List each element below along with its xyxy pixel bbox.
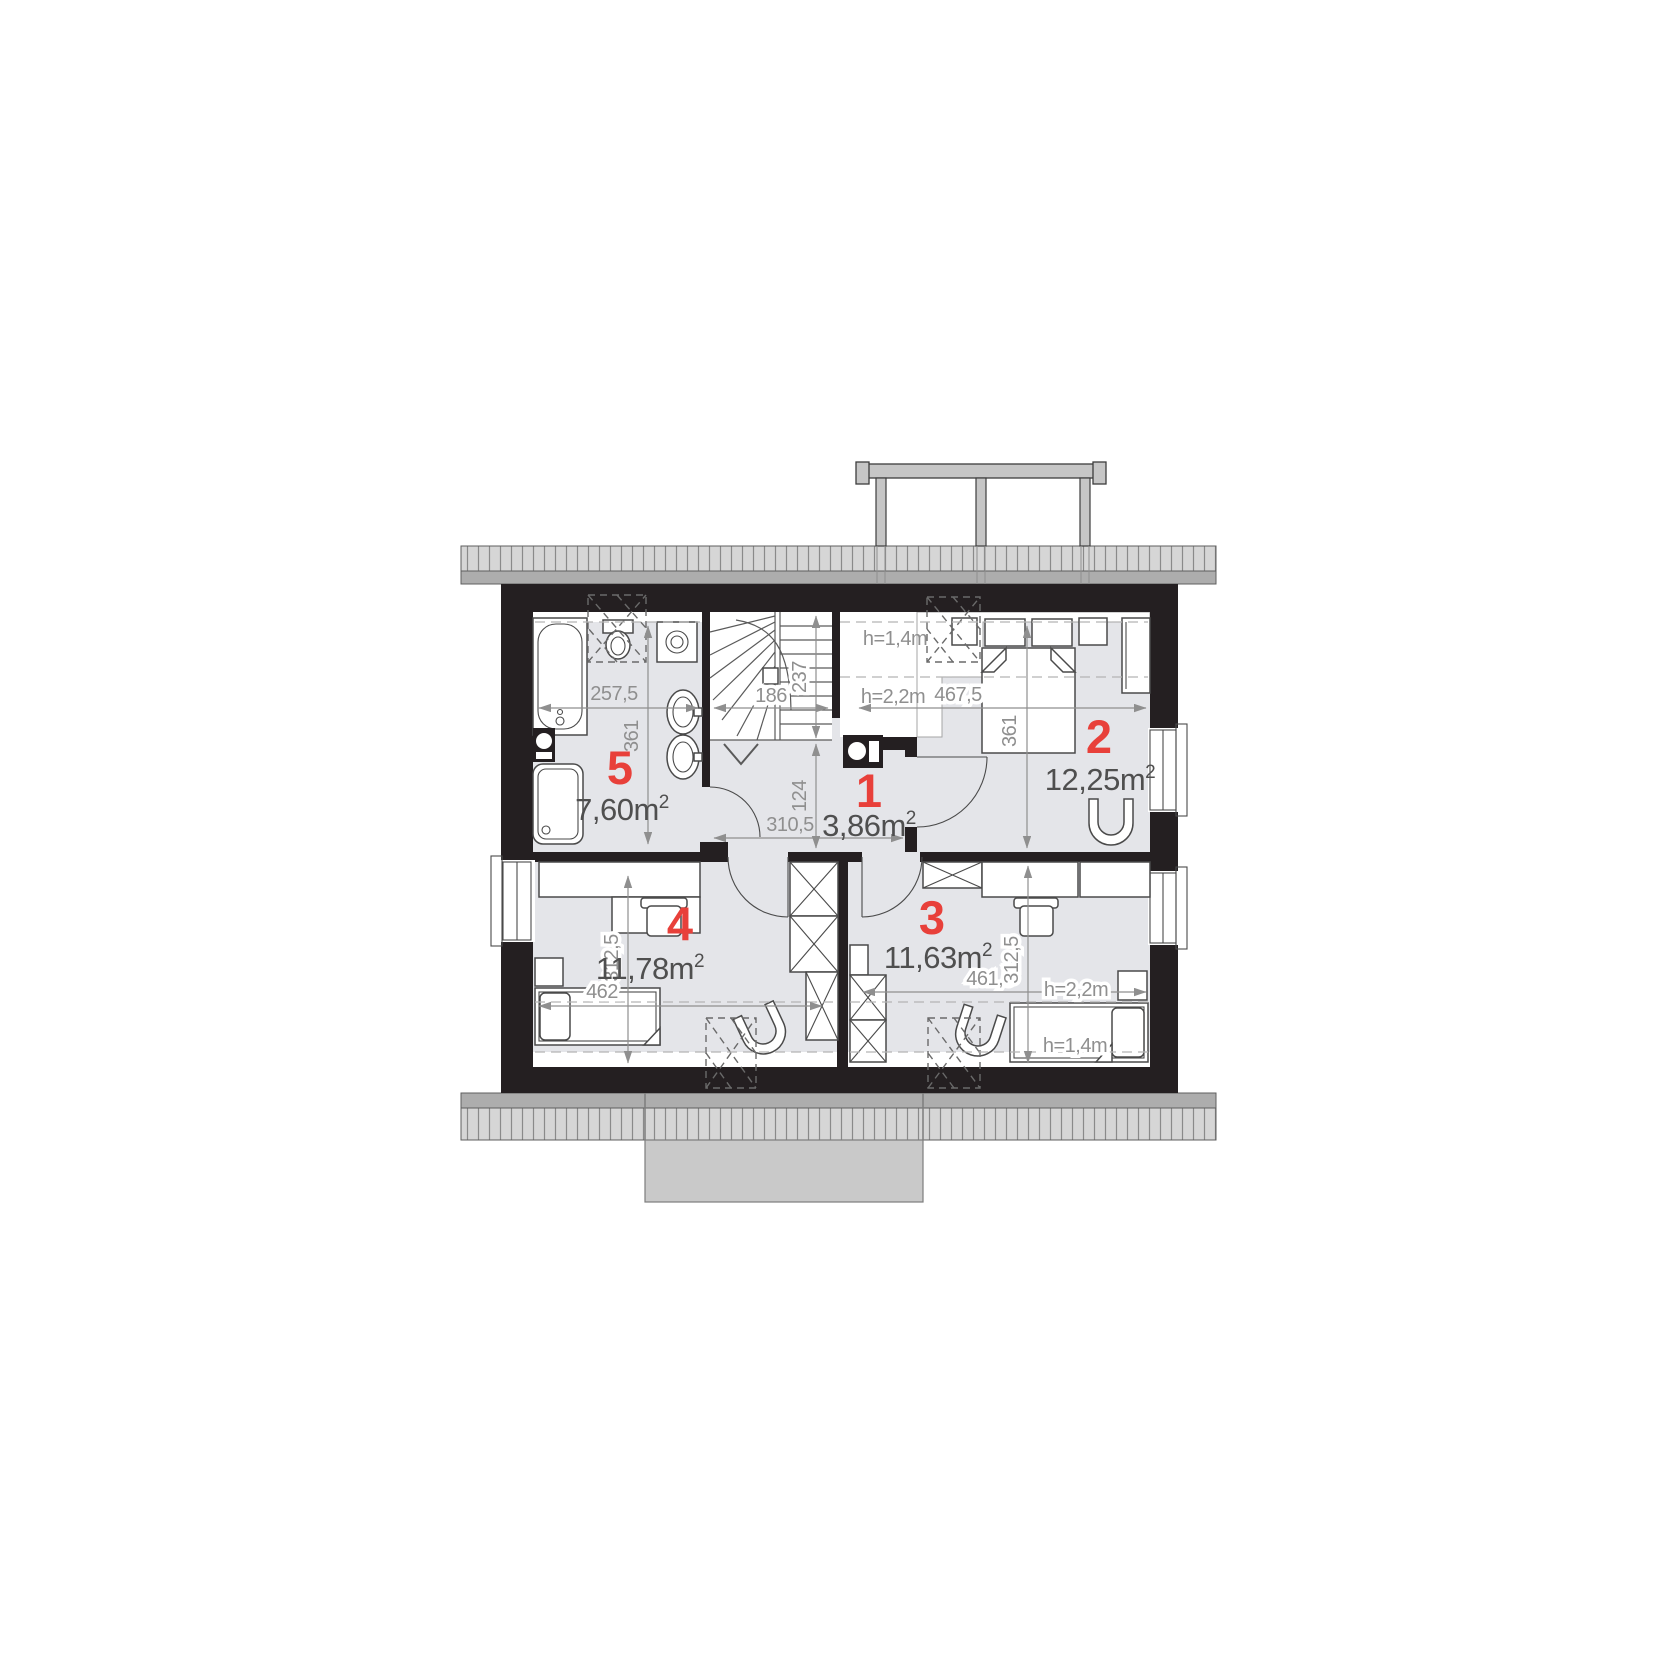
dim-room3-depth: 312,5 bbox=[1001, 936, 1023, 984]
dim-stair-width: 186 bbox=[755, 685, 787, 707]
balcony-post-left bbox=[876, 478, 886, 546]
toilet-unit bbox=[533, 728, 555, 762]
partition-bath-stairs bbox=[702, 612, 710, 787]
divider-stub bbox=[700, 842, 728, 862]
room4-bottom-white-zone bbox=[533, 1052, 837, 1067]
balcony-rail-bar bbox=[866, 464, 1096, 478]
balcony-rail-cap-left bbox=[856, 462, 869, 484]
water-heater-drum bbox=[848, 742, 866, 760]
label-h22-bottom: h=2,2m bbox=[1044, 979, 1108, 1001]
room5-area: 7,60m2 bbox=[575, 792, 669, 827]
room3-desk-extension bbox=[1080, 862, 1150, 897]
window-room3-right bbox=[1148, 867, 1187, 949]
balcony-rail-cap-right bbox=[1093, 462, 1106, 484]
room3-shelf-small bbox=[850, 945, 868, 975]
washing-machine bbox=[657, 622, 697, 662]
dim-room2-width: 467,5 bbox=[934, 684, 982, 706]
room3-wardrobe-column bbox=[850, 975, 886, 1062]
top-eave-hatch bbox=[461, 546, 1216, 571]
room2-area: 12,25m2 bbox=[1045, 762, 1155, 797]
label-h14-bottom: h=1,4m bbox=[1043, 1035, 1107, 1057]
dim-room2-bed: 361 bbox=[999, 715, 1021, 747]
room3-desk bbox=[982, 862, 1078, 897]
divider-bath-room4 bbox=[533, 852, 702, 862]
room5-number: 5 bbox=[607, 741, 633, 794]
dim-hall-depth: 124 bbox=[789, 780, 811, 812]
water-heater-panel bbox=[869, 741, 879, 762]
floor-plan-page: 257,5 186 361 237 124 310,5 467,5 361 31… bbox=[0, 0, 1680, 1680]
room1-area: 3,86m2 bbox=[822, 808, 916, 843]
stair-newel bbox=[763, 668, 778, 684]
toilet-unit-base bbox=[536, 752, 552, 759]
partition-hall-room2-b bbox=[905, 827, 917, 852]
toilet-unit-bowl bbox=[536, 733, 552, 749]
dim-stair-depth: 237 bbox=[789, 661, 811, 693]
divider-room2-room3 bbox=[920, 852, 1150, 862]
dim-hall-width: 310,5 bbox=[766, 814, 814, 836]
room4-desk bbox=[539, 862, 700, 897]
floor-plan-drawing: 257,5 186 361 237 124 310,5 467,5 361 31… bbox=[0, 0, 1680, 1680]
bottom-eave-hatch bbox=[461, 1108, 1216, 1140]
dim-bath-width: 257,5 bbox=[590, 683, 638, 705]
room4-area: 11,78m2 bbox=[596, 951, 704, 986]
room3-wardrobe-top bbox=[923, 862, 982, 888]
balcony-post-right bbox=[1080, 478, 1090, 546]
partition-stairs-hall bbox=[832, 612, 840, 718]
balcony-post-middle bbox=[976, 478, 986, 546]
top-eave-band bbox=[461, 571, 1216, 584]
bottom-eave-band bbox=[461, 1093, 1216, 1108]
room3-nightstand bbox=[1118, 971, 1147, 1000]
room3-area: 11,63m2 bbox=[884, 940, 992, 975]
room3-desk-chair bbox=[1014, 898, 1058, 936]
partition-hall-room2-a bbox=[905, 737, 917, 757]
room4-nightstand bbox=[535, 958, 563, 986]
label-h14-top: h=1,4m bbox=[863, 628, 927, 650]
bathtub bbox=[533, 618, 587, 735]
chimney bbox=[645, 1140, 923, 1202]
label-h22-top: h=2,2m bbox=[861, 686, 925, 708]
divider-center-cap bbox=[788, 852, 862, 862]
room3-number: 3 bbox=[919, 891, 945, 944]
room2-number: 2 bbox=[1086, 710, 1112, 763]
window-room4-left bbox=[491, 856, 535, 946]
room4-number: 4 bbox=[667, 897, 693, 950]
